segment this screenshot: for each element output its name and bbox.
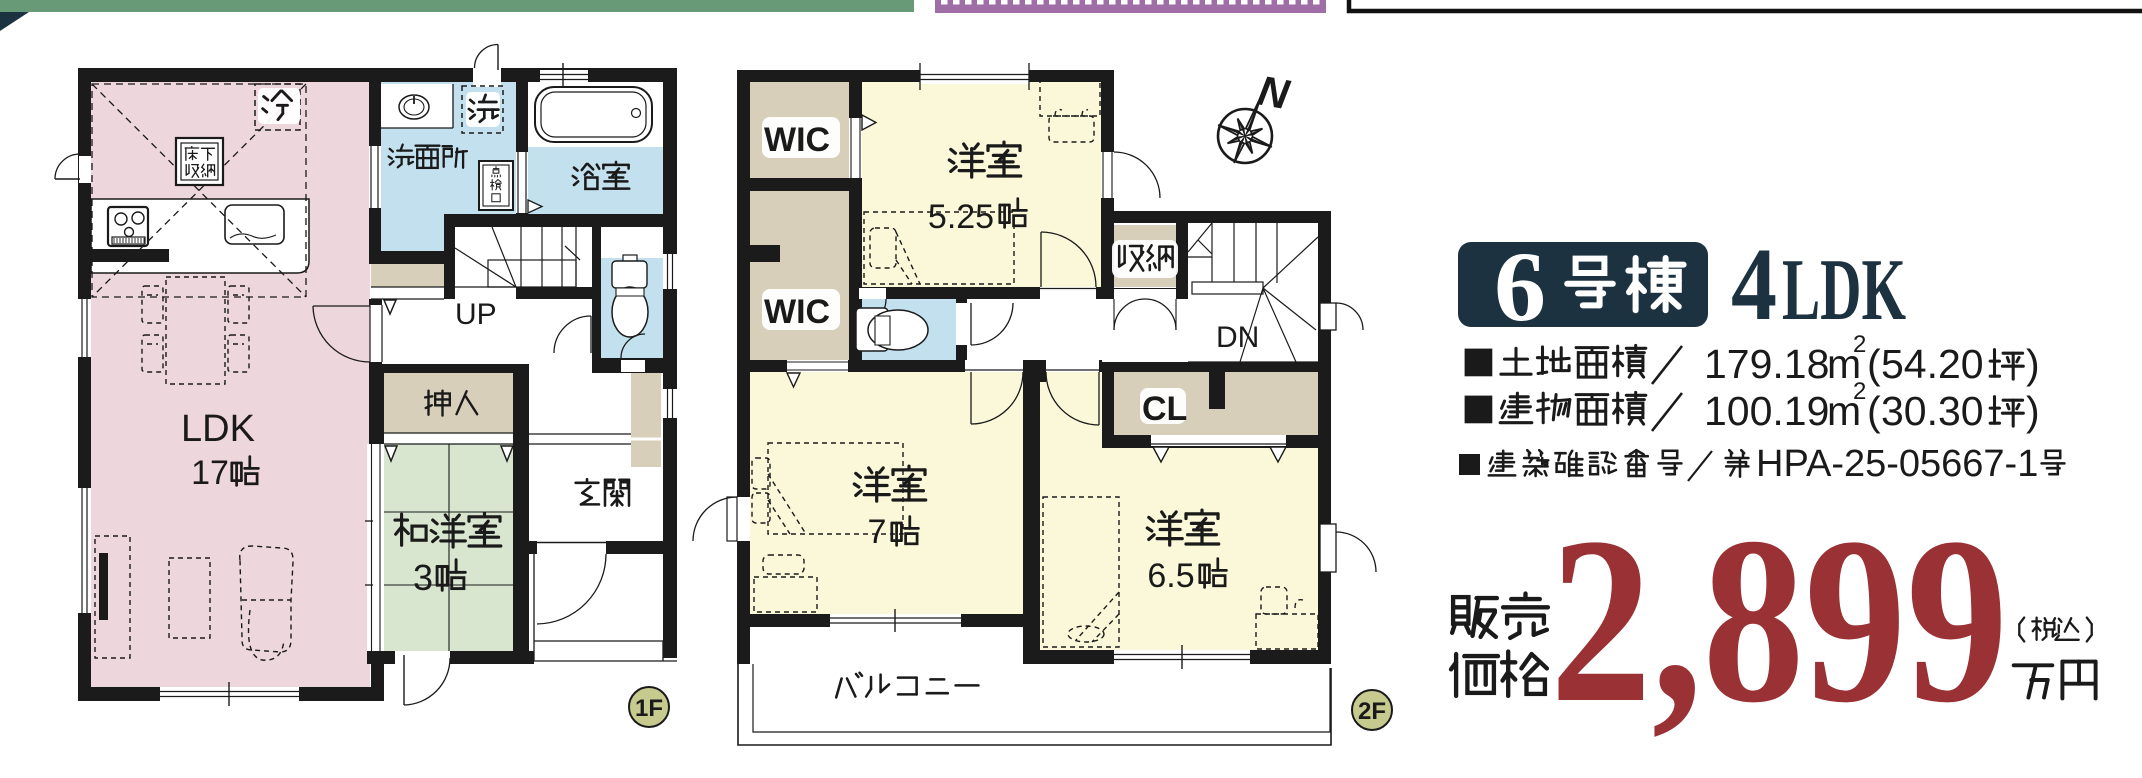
svg-text:179.18: 179.18 (1704, 341, 1829, 387)
svg-text:): ) (2026, 388, 2040, 434)
svg-text:17: 17 (191, 454, 229, 492)
svg-text:5.25: 5.25 (928, 198, 994, 236)
svg-text:): ) (2026, 341, 2040, 387)
svg-text:6.5: 6.5 (1147, 557, 1194, 595)
svg-text:2: 2 (1853, 378, 1866, 405)
svg-text:(: ( (1867, 341, 1881, 387)
svg-text:6: 6 (1494, 231, 1546, 342)
svg-text:HPA-25-05667-1: HPA-25-05667-1 (1756, 443, 2038, 485)
svg-text:1F: 1F (635, 695, 663, 722)
svg-text:2F: 2F (1358, 698, 1386, 725)
svg-text:2: 2 (1853, 331, 1866, 358)
svg-text:LDK: LDK (181, 408, 255, 450)
svg-text:54.20: 54.20 (1881, 341, 1984, 387)
svg-text:30.30: 30.30 (1881, 388, 1984, 434)
svg-text:CL: CL (1142, 390, 1187, 428)
svg-text:2,899: 2,899 (1550, 489, 2008, 752)
svg-text:WIC: WIC (764, 293, 830, 331)
svg-text:3: 3 (413, 557, 433, 598)
svg-text:7: 7 (868, 513, 887, 551)
svg-text:UP: UP (455, 298, 497, 331)
svg-text:DN: DN (1216, 321, 1259, 354)
svg-text:WIC: WIC (764, 121, 830, 159)
svg-text:100.19: 100.19 (1704, 388, 1829, 434)
svg-text:4: 4 (1731, 227, 1777, 342)
svg-text:LDK: LDK (1782, 242, 1906, 339)
svg-text:(: ( (1867, 388, 1881, 434)
